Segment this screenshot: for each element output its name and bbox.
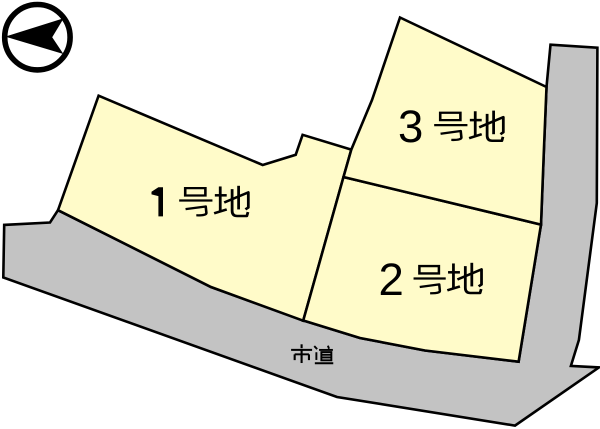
svg-text:2: 2 (379, 254, 404, 305)
svg-text:3: 3 (398, 101, 423, 152)
